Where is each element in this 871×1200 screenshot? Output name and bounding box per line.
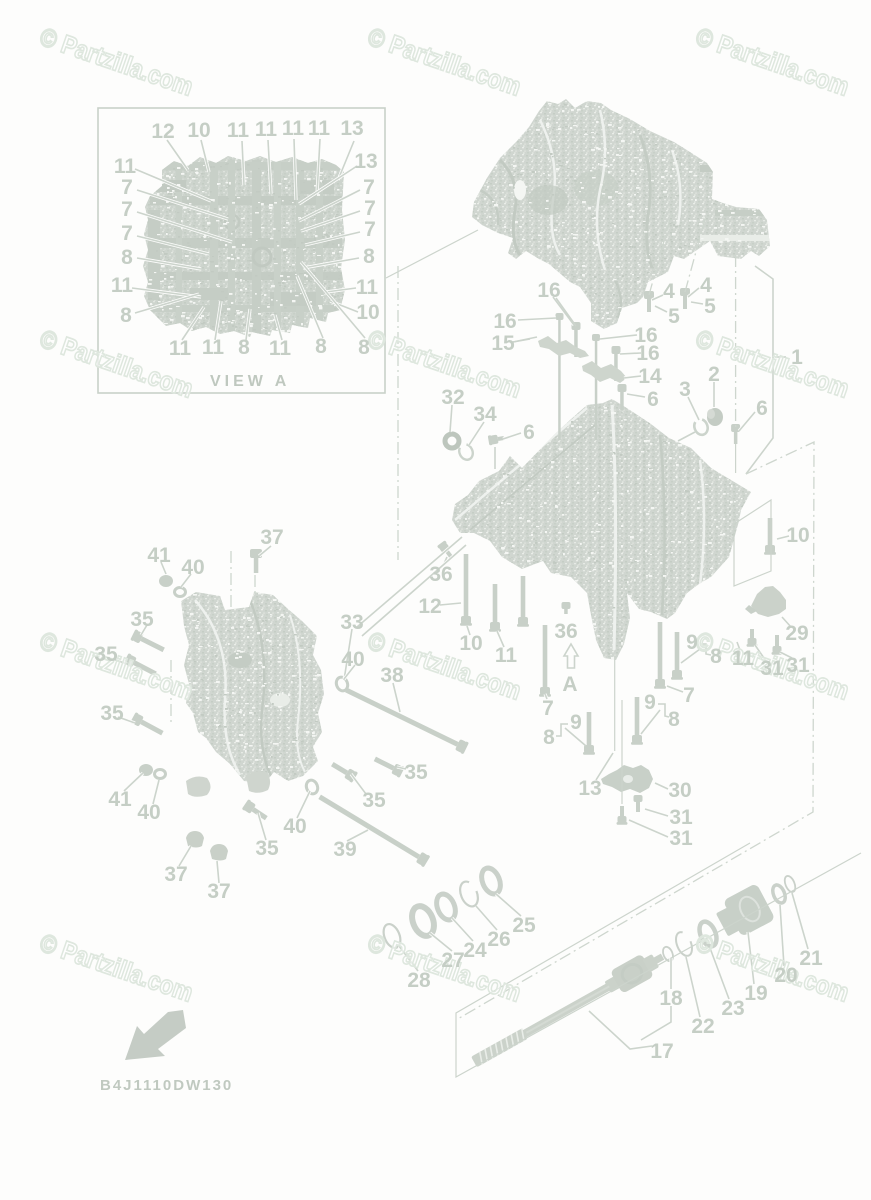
svg-text:2: 2 [708,363,720,386]
svg-text:1: 1 [791,346,803,369]
svg-text:8: 8 [543,726,555,749]
svg-text:6: 6 [647,388,659,411]
svg-text:40: 40 [137,801,160,824]
svg-text:5: 5 [704,295,716,318]
svg-text:36: 36 [554,620,577,643]
svg-text:16: 16 [636,342,659,365]
svg-text:17: 17 [650,1040,673,1063]
svg-text:8: 8 [238,336,250,359]
svg-text:13: 13 [578,777,601,800]
svg-text:18: 18 [659,987,683,1010]
svg-text:11: 11 [227,119,250,142]
svg-text:9: 9 [644,691,656,714]
svg-text:30: 30 [668,779,691,802]
svg-text:20: 20 [774,964,797,987]
svg-text:29: 29 [785,622,808,645]
svg-text:40: 40 [181,556,204,579]
svg-text:37: 37 [260,526,283,549]
svg-text:A: A [562,673,577,696]
svg-text:41: 41 [147,544,171,567]
svg-text:8: 8 [710,645,722,668]
svg-text:35: 35 [94,643,118,666]
svg-text:40: 40 [283,815,306,838]
svg-text:10: 10 [187,119,210,142]
svg-text:16: 16 [493,310,516,333]
svg-text:7: 7 [364,197,376,220]
svg-text:12: 12 [151,120,174,143]
svg-text:11: 11 [111,274,134,297]
svg-text:36: 36 [429,563,452,586]
svg-text:11: 11 [495,644,518,667]
svg-text:14: 14 [638,365,662,388]
svg-text:25: 25 [512,914,536,937]
svg-text:31: 31 [669,827,693,850]
svg-text:38: 38 [380,664,404,687]
svg-text:10: 10 [786,524,809,547]
svg-text:7: 7 [683,684,695,707]
svg-text:8: 8 [363,245,375,268]
svg-text:31: 31 [760,657,784,680]
svg-text:6: 6 [756,397,768,420]
svg-text:11: 11 [269,337,292,360]
svg-text:6: 6 [523,421,535,444]
svg-text:26: 26 [487,928,510,951]
svg-text:11: 11 [282,117,305,140]
svg-text:11: 11 [169,337,192,360]
svg-text:21: 21 [799,947,823,970]
svg-text:4: 4 [700,274,712,297]
svg-text:16: 16 [537,279,560,302]
svg-text:7: 7 [542,697,554,720]
svg-text:VIEW A: VIEW A [210,373,290,390]
svg-text:35: 35 [404,761,428,784]
svg-text:12: 12 [418,595,441,618]
svg-text:40: 40 [341,648,364,671]
svg-text:34: 34 [473,403,497,426]
svg-text:8: 8 [120,304,132,327]
svg-text:35: 35 [130,608,154,631]
svg-text:11: 11 [732,647,755,670]
svg-text:13: 13 [354,150,377,173]
svg-text:7: 7 [121,176,133,199]
svg-text:31: 31 [669,806,693,829]
svg-text:8: 8 [315,335,327,358]
svg-text:9: 9 [686,631,698,654]
svg-text:4: 4 [663,280,675,303]
svg-text:35: 35 [255,837,279,860]
svg-text:31: 31 [786,654,810,677]
svg-text:19: 19 [744,982,767,1005]
svg-text:22: 22 [691,1015,714,1038]
svg-text:27: 27 [441,949,464,972]
svg-text:10: 10 [459,632,482,655]
svg-text:28: 28 [407,969,431,992]
svg-text:11: 11 [255,118,278,141]
svg-text:13: 13 [340,117,363,140]
svg-text:B4J1110DW130: B4J1110DW130 [100,1077,233,1094]
svg-text:41: 41 [108,788,132,811]
svg-text:24: 24 [463,939,487,962]
svg-text:35: 35 [362,789,386,812]
svg-text:7: 7 [363,176,375,199]
svg-text:33: 33 [340,611,363,634]
svg-text:15: 15 [491,332,515,355]
svg-text:7: 7 [121,198,133,221]
svg-text:11: 11 [114,155,137,178]
svg-text:9: 9 [570,711,582,734]
svg-text:32: 32 [441,386,464,409]
svg-text:11: 11 [202,336,225,359]
svg-text:8: 8 [668,708,680,731]
svg-text:37: 37 [207,880,230,903]
svg-text:11: 11 [308,117,331,140]
svg-text:8: 8 [121,246,133,269]
svg-text:11: 11 [356,276,379,299]
svg-text:5: 5 [668,305,680,328]
svg-text:39: 39 [333,838,356,861]
svg-text:23: 23 [721,997,744,1020]
svg-text:10: 10 [356,301,379,324]
svg-text:7: 7 [364,218,376,241]
svg-text:35: 35 [100,702,124,725]
svg-text:8: 8 [358,336,370,359]
svg-text:37: 37 [164,863,187,886]
svg-text:7: 7 [121,222,133,245]
svg-text:3: 3 [679,378,691,401]
